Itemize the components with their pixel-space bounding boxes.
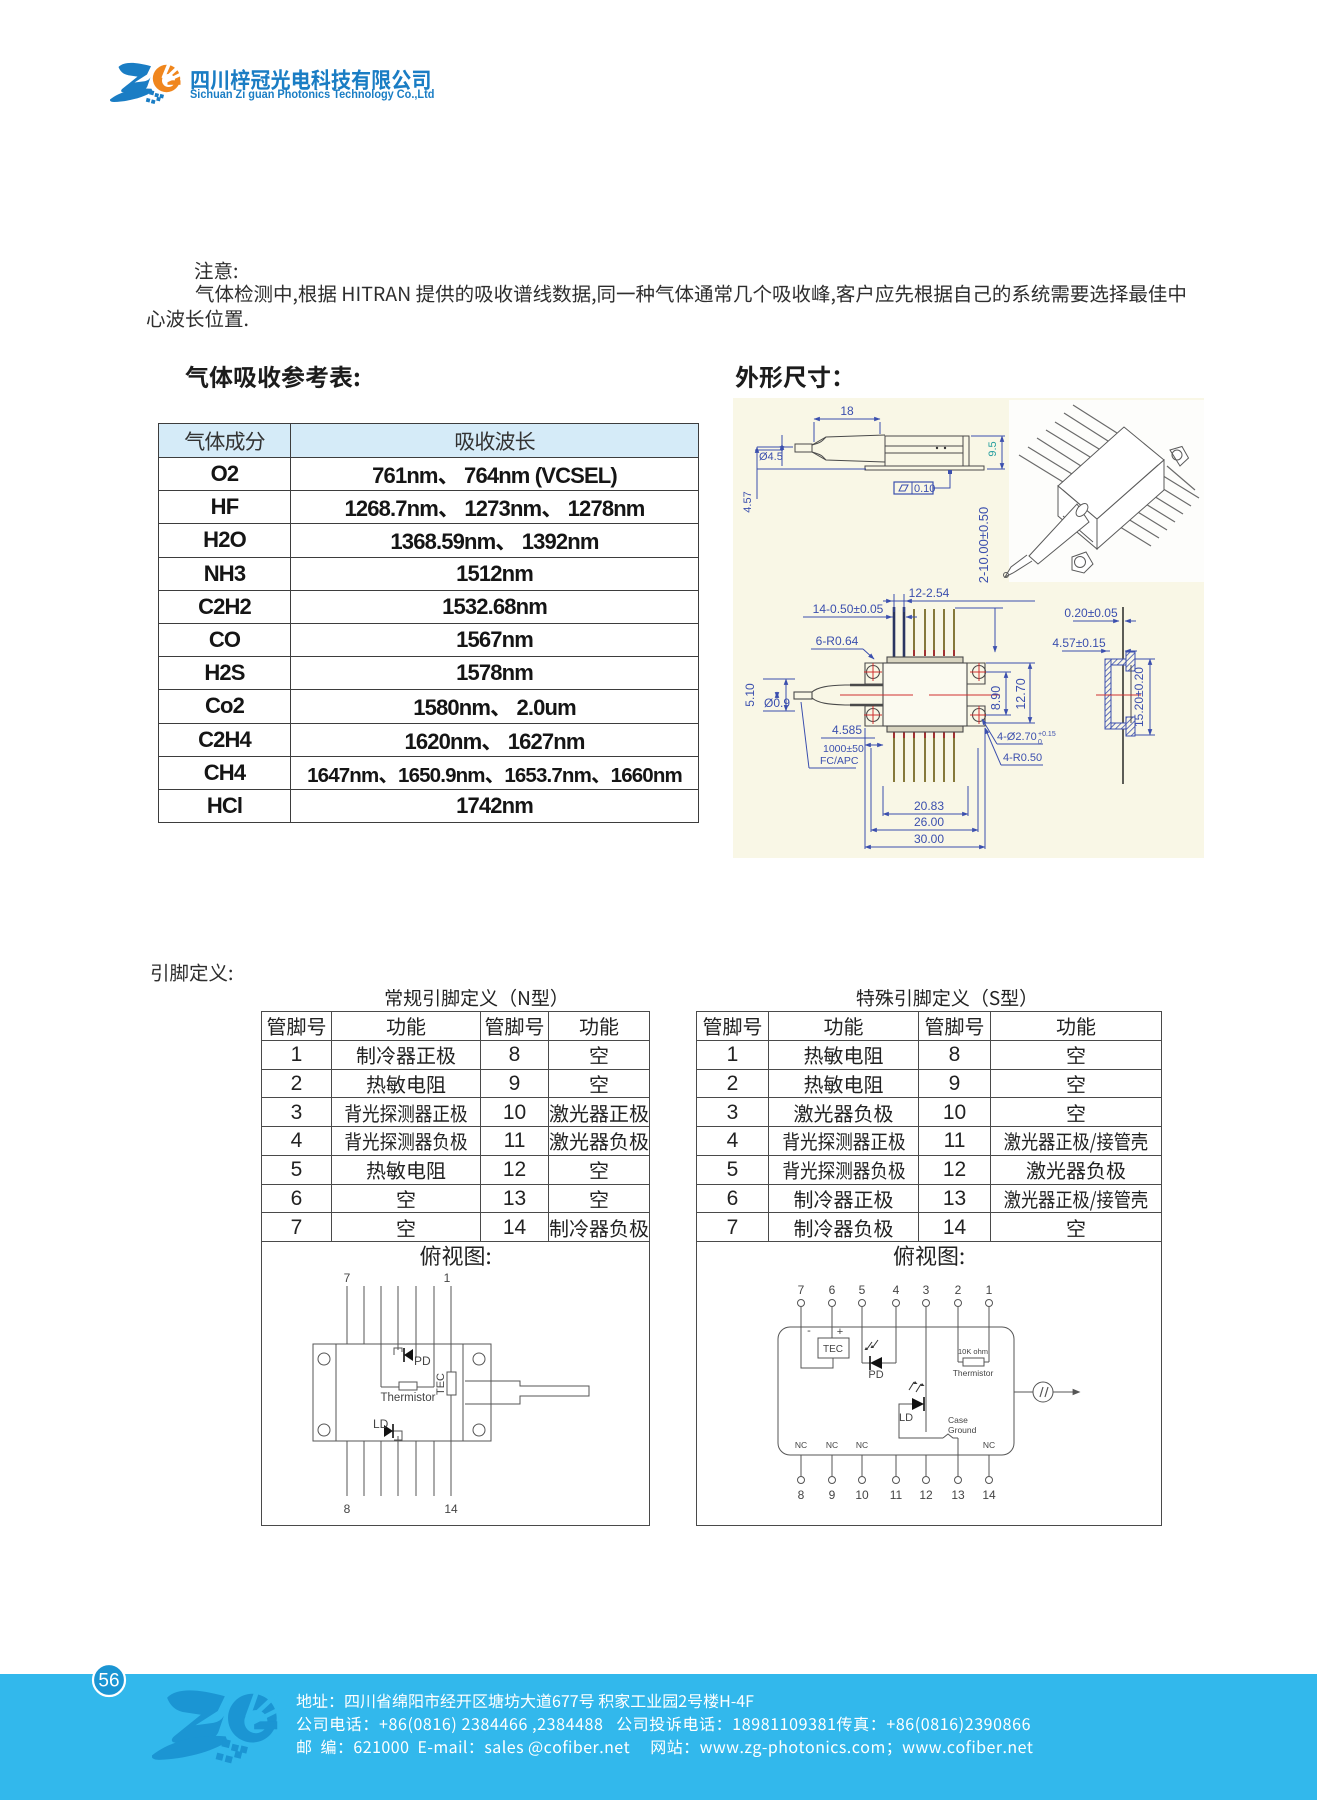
svg-text:LD: LD [373, 1417, 389, 1431]
svg-text:NC: NC [983, 1440, 995, 1450]
svg-text:8: 8 [798, 1488, 805, 1502]
svg-text:5: 5 [859, 1283, 866, 1297]
svg-text:6: 6 [829, 1283, 836, 1297]
svg-text:10: 10 [855, 1488, 869, 1502]
svg-text:6-R0.64: 6-R0.64 [816, 634, 859, 648]
svg-text:PD: PD [414, 1354, 431, 1368]
svg-text:15.20±0.20: 15.20±0.20 [1132, 667, 1146, 727]
svg-text:7: 7 [798, 1283, 805, 1297]
svg-text:3: 3 [923, 1283, 930, 1297]
svg-text:26.00: 26.00 [914, 815, 944, 829]
svg-text:56: 56 [98, 1671, 119, 1692]
svg-text:Thermistor: Thermistor [381, 1392, 436, 1404]
svg-text:14-0.50±0.05: 14-0.50±0.05 [813, 602, 884, 616]
svg-text:NC: NC [826, 1440, 838, 1450]
svg-text:30.00: 30.00 [914, 832, 944, 846]
svg-text:14: 14 [982, 1488, 996, 1502]
svg-text:Ø0.9: Ø0.9 [764, 696, 790, 710]
svg-text:NC: NC [856, 1440, 868, 1450]
svg-text:8: 8 [344, 1502, 351, 1516]
svg-text:12.70: 12.70 [1014, 678, 1028, 709]
svg-text:5.10: 5.10 [743, 683, 757, 707]
svg-text:TEC: TEC [435, 1373, 447, 1395]
svg-text:Ø4.5: Ø4.5 [759, 451, 783, 463]
svg-text:1000±50: 1000±50 [823, 743, 864, 755]
svg-text:1: 1 [444, 1271, 451, 1285]
svg-text:0: 0 [1038, 739, 1042, 746]
svg-text:2-10.00±0.50: 2-10.00±0.50 [976, 507, 991, 584]
svg-text:13: 13 [951, 1488, 965, 1502]
svg-text:PD: PD [868, 1369, 883, 1381]
svg-text:2: 2 [955, 1283, 962, 1297]
svg-text:4.57: 4.57 [742, 491, 754, 512]
svg-text:Case: Case [948, 1415, 968, 1425]
svg-text:12-2.54: 12-2.54 [909, 586, 950, 600]
svg-text:0.20±0.05: 0.20±0.05 [1064, 606, 1118, 620]
svg-text:TEC: TEC [823, 1344, 843, 1355]
svg-text:0.10: 0.10 [914, 483, 935, 495]
svg-text:4: 4 [893, 1283, 900, 1297]
svg-text:4.585: 4.585 [832, 723, 862, 737]
svg-text:11: 11 [890, 1488, 903, 1502]
svg-text:FC/APC: FC/APC [820, 755, 859, 767]
svg-text:9.5: 9.5 [987, 441, 999, 456]
svg-text:Ground: Ground [948, 1425, 977, 1435]
svg-text:1: 1 [986, 1283, 993, 1297]
svg-text:12: 12 [919, 1488, 933, 1502]
svg-text:14: 14 [444, 1502, 458, 1516]
svg-text:NC: NC [795, 1440, 807, 1450]
svg-text:4-R0.50: 4-R0.50 [1003, 752, 1042, 764]
svg-text:8.90: 8.90 [989, 686, 1003, 710]
svg-text:18: 18 [840, 404, 854, 418]
svg-text:7: 7 [344, 1271, 351, 1285]
svg-text:LD: LD [899, 1412, 913, 1424]
svg-text:+0.15: +0.15 [1038, 731, 1056, 738]
svg-text:+: + [837, 1326, 843, 1338]
svg-text:9: 9 [829, 1488, 836, 1502]
svg-text:-: - [807, 1325, 811, 1337]
svg-text:Thermistor: Thermistor [953, 1368, 994, 1378]
svg-text:4-Ø2.70: 4-Ø2.70 [997, 731, 1037, 743]
svg-text:10K ohm: 10K ohm [958, 1347, 988, 1356]
svg-text:20.83: 20.83 [914, 799, 944, 813]
svg-text:4.57±0.15: 4.57±0.15 [1052, 636, 1106, 650]
